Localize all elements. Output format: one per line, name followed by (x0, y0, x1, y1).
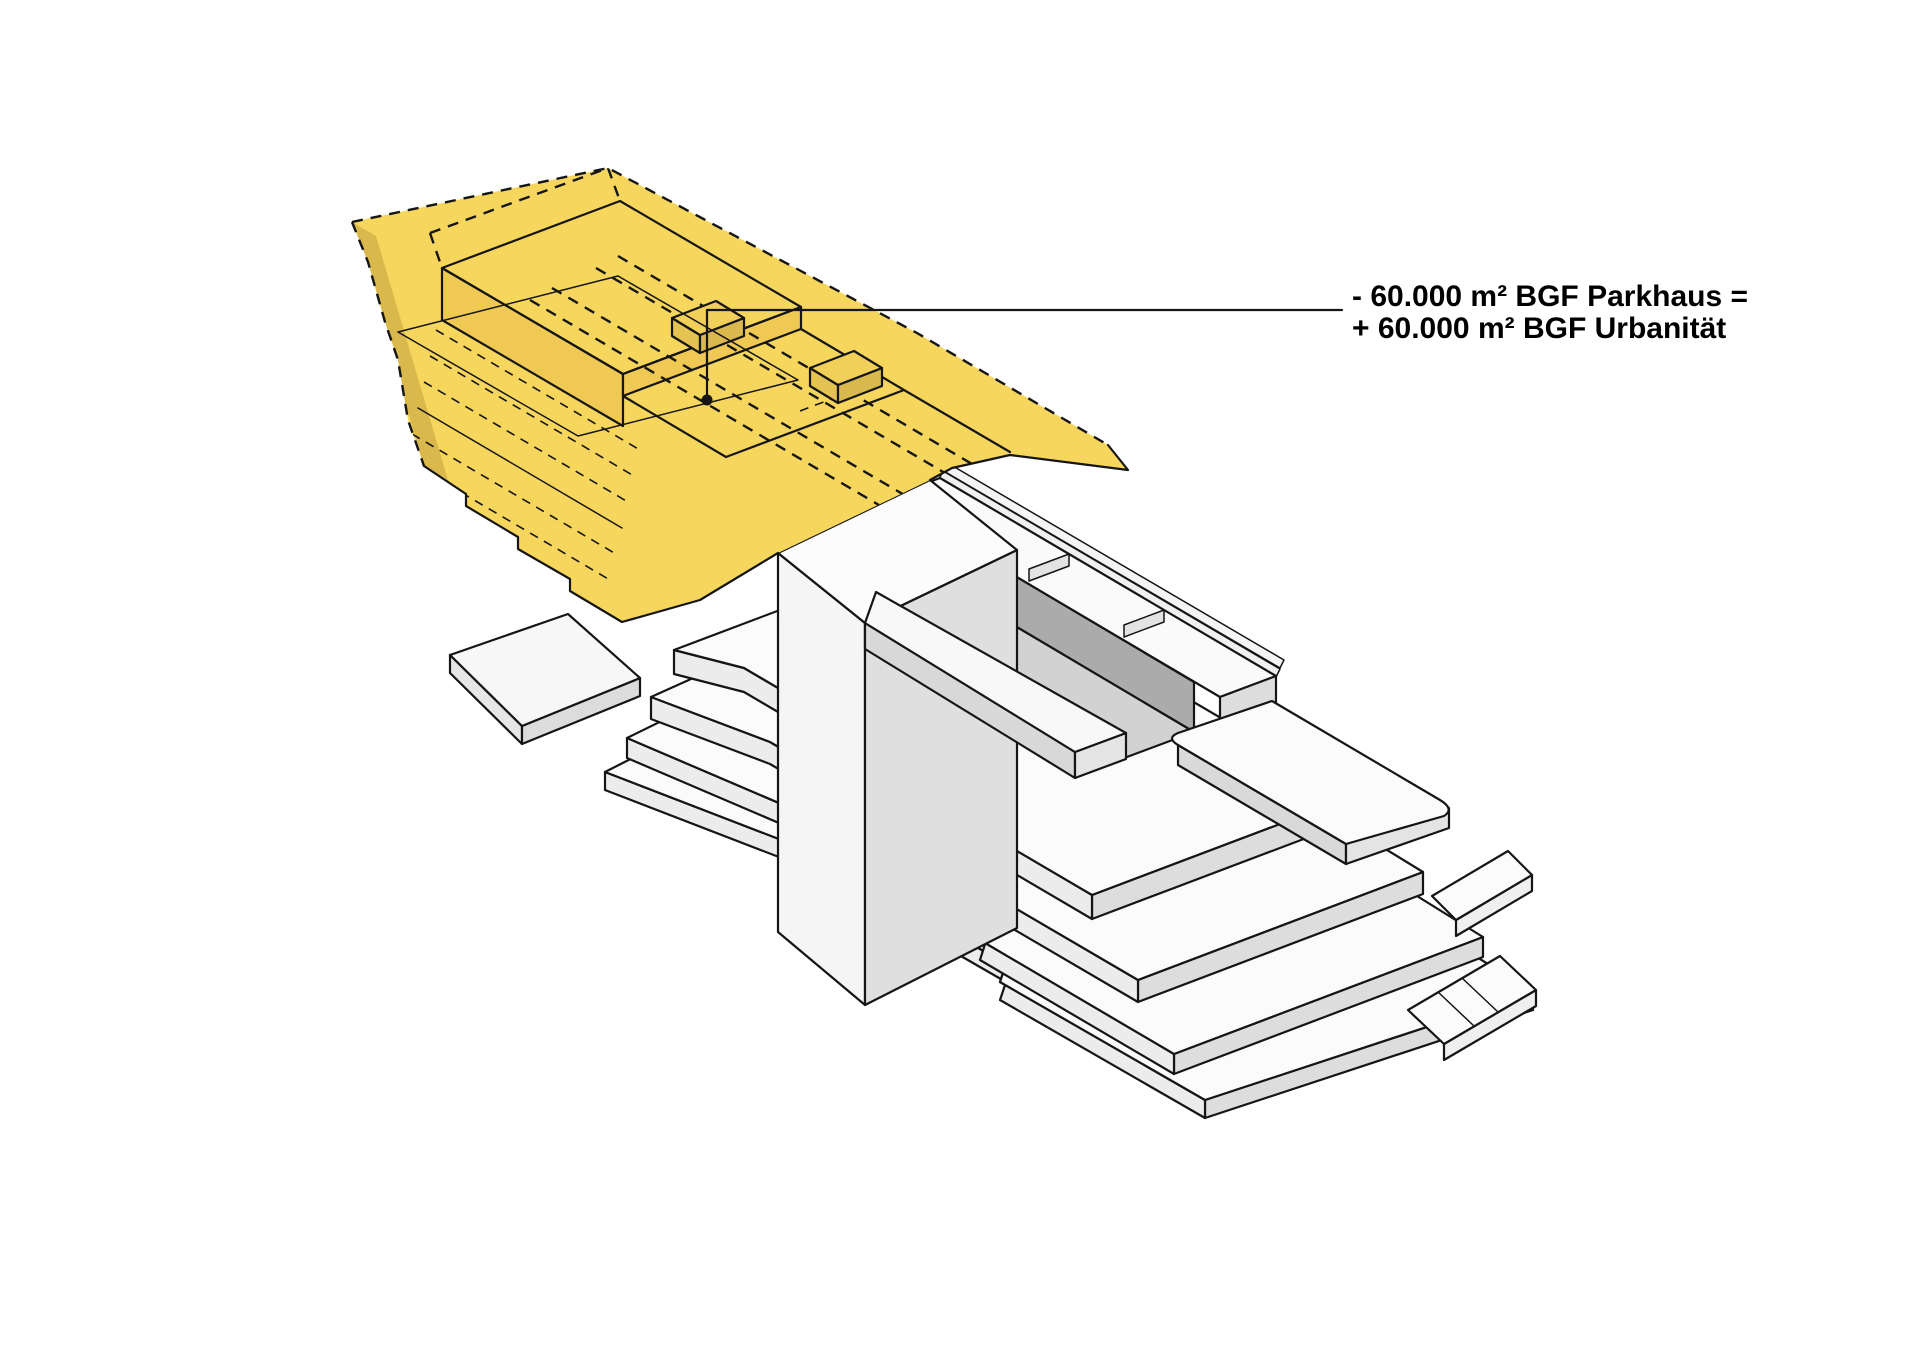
tower (778, 480, 1017, 1005)
annotation-line-1: - 60.000 m² BGF Parkhaus = (1352, 280, 1748, 313)
annotation-label: - 60.000 m² BGF Parkhaus = + 60.000 m² B… (1352, 280, 1748, 345)
junction-slab (450, 614, 640, 744)
leader-dot (702, 395, 713, 406)
axonometric-massing-diagram: - 60.000 m² BGF Parkhaus = + 60.000 m² B… (0, 0, 1920, 1358)
annotation-line-2: + 60.000 m² BGF Urbanität (1352, 312, 1726, 345)
massing-diagram-page: - 60.000 m² BGF Parkhaus = + 60.000 m² B… (0, 0, 1920, 1358)
